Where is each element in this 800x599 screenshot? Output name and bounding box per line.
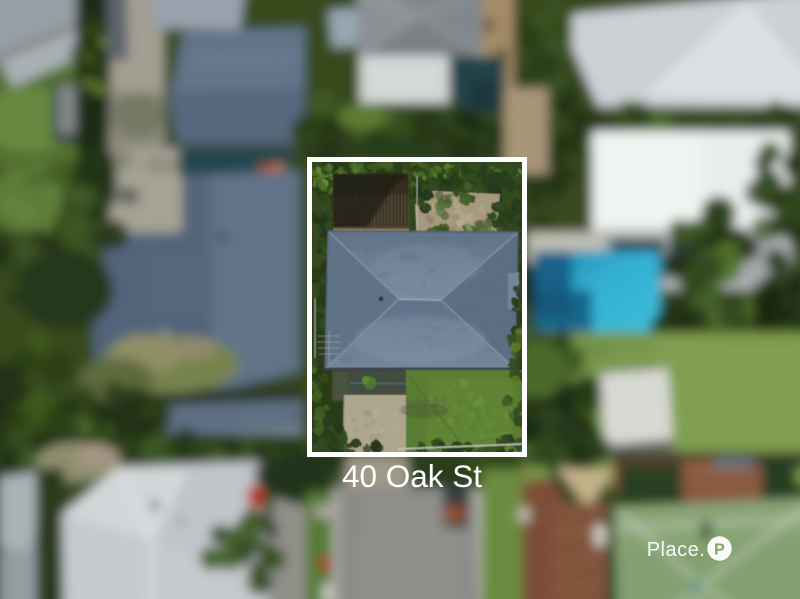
svg-text:40 Oak St: 40 Oak St: [342, 458, 482, 494]
svg-text:P: P: [714, 542, 725, 559]
svg-text:Place.: Place.: [647, 539, 706, 561]
